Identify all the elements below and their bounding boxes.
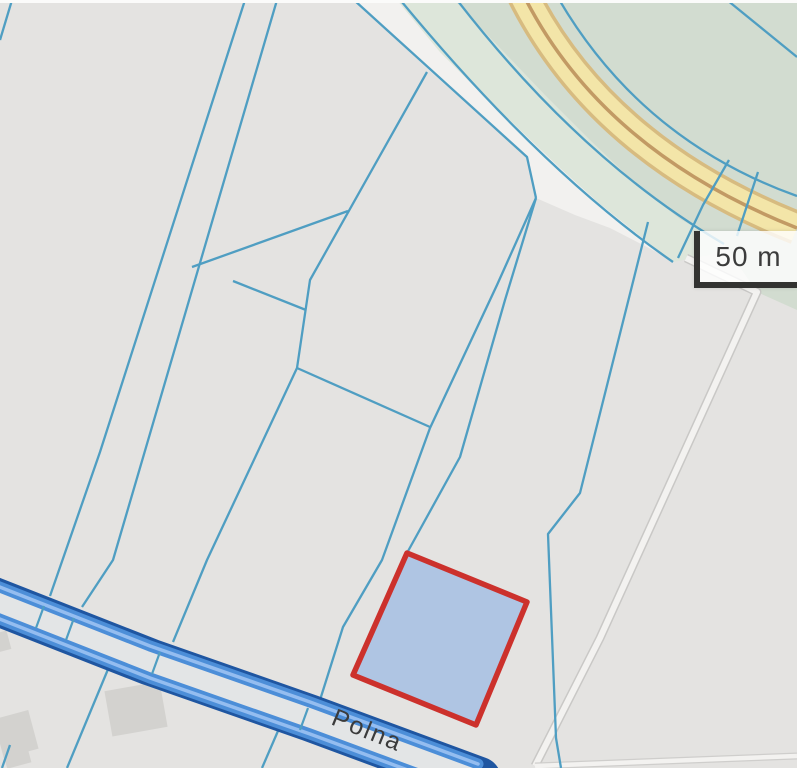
scale-bar: 50 m (694, 231, 797, 288)
map-viewport[interactable]: Polna 50 m (0, 0, 797, 768)
top-edge-strip (0, 0, 797, 3)
map-canvas[interactable]: Polna (0, 0, 797, 768)
scale-bar-label: 50 m (715, 241, 781, 273)
